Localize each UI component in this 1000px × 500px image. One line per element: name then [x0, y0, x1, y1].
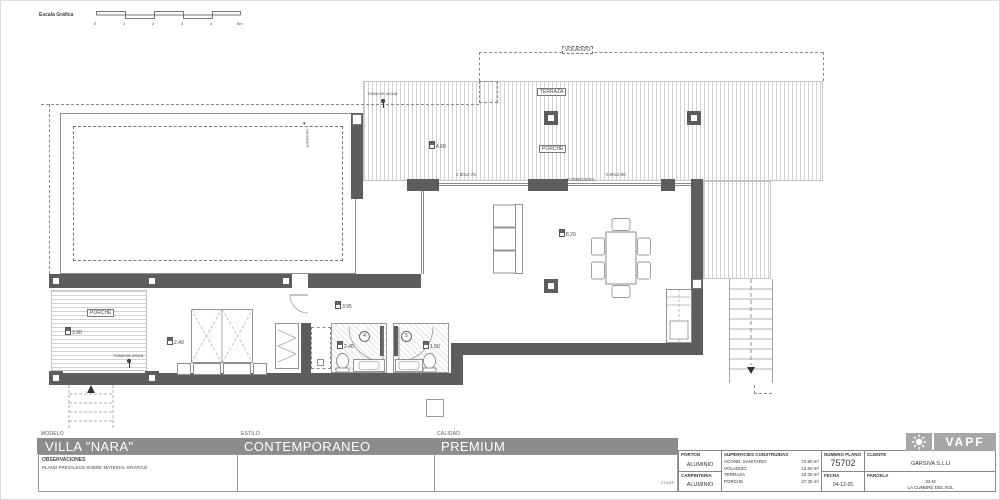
- bath-b-tag: 5: [401, 331, 412, 342]
- numero-plano-cell: NUMERO PLANO 75702: [822, 451, 865, 472]
- porton-value: ALUMINIO: [679, 462, 721, 468]
- bed-pillow: [193, 363, 221, 375]
- modelo-label: MODELO: [41, 431, 64, 437]
- numero-plano-value: 75702: [822, 458, 864, 468]
- estilo-label: ESTILO: [241, 431, 260, 437]
- title-block-table: PORTON ALUMINIO CARPINTERIA ALUMINIO SUP…: [678, 450, 996, 492]
- terrace-column: [687, 111, 701, 125]
- parcela-value-2: LA CUMBRE DEL SOL: [865, 485, 996, 490]
- wall-column: [145, 274, 159, 288]
- wall: [661, 179, 675, 191]
- porton-cell: PORTON ALUMINIO: [679, 451, 722, 472]
- wall-column: [49, 274, 63, 288]
- estilo-value: CONTEMPORANEO: [244, 439, 371, 454]
- wall-window: [692, 279, 702, 289]
- observaciones-label: OBSERVACIONES: [42, 457, 85, 463]
- superficie-row: PORCHE27.30 m²: [722, 479, 821, 486]
- voladizo-dash-step: [479, 81, 498, 103]
- carpinteria-value: ALUMINIO: [679, 482, 721, 488]
- water-tap-icon: [383, 103, 384, 108]
- scale-tick: 2: [152, 21, 154, 27]
- wall-north-wing: [49, 274, 279, 288]
- scale-tick: 3: [181, 21, 183, 27]
- bedside-table: [253, 363, 267, 375]
- voladizo-dash-line: [479, 52, 480, 81]
- dining-table: [591, 218, 651, 298]
- voladizo-label: VOLADIZO: [562, 46, 593, 54]
- terrace-hatch-right: [703, 181, 771, 279]
- sliding-door: [675, 183, 691, 186]
- vapf-sun-icon: [906, 433, 932, 451]
- wall: [528, 179, 568, 191]
- observaciones-box: OBSERVACIONES PLANO PREVALECE SOBRE MATE…: [38, 454, 238, 492]
- toma-agua-top-label: TOMA DE AGUA: [367, 91, 397, 97]
- property-dash-line: [41, 104, 479, 105]
- exterior-stairs: [729, 279, 773, 383]
- wall-south-living: [451, 343, 703, 355]
- entry-door-arc: [290, 293, 310, 315]
- parcela-value-1: 33-M: [865, 479, 996, 484]
- pool-arrow: ▾: [303, 121, 306, 127]
- detail-marker-square: [426, 399, 444, 417]
- glass-wall-west: [421, 191, 424, 274]
- scale-tick: 1: [123, 21, 125, 27]
- wardrobe: [275, 323, 299, 369]
- scale-tick: 4: [210, 21, 212, 27]
- model-bar: VILLA "NARA" CONTEMPORANEO PREMIUM: [37, 438, 678, 454]
- sliding-door: [568, 183, 661, 186]
- vanity-sink: [353, 359, 385, 372]
- pool-fitting-label: SKIMMER: [304, 129, 310, 148]
- wall-column: [279, 274, 292, 288]
- voladizo-dash-line: [479, 52, 823, 53]
- wall-column: [49, 371, 63, 385]
- corredera-label: CORREDERA: [566, 177, 595, 182]
- bed-pillow: [223, 363, 251, 375]
- scale-tick: 5m: [237, 21, 243, 27]
- observaciones-value: PLANO PREVALECE SOBRE MATERIAL GRÁFICO: [42, 465, 147, 471]
- double-bed: [191, 309, 253, 366]
- dim-marker-bedroom: 2.40: [167, 337, 184, 346]
- bath-divider: [394, 326, 398, 356]
- wall-column: [145, 371, 159, 385]
- terraza-label: TERRAZA: [537, 88, 566, 96]
- toilet: [422, 353, 437, 372]
- drawing-sheet: Escala Gráfica 0 1 2 3 4 5m VOLADIZO ▾ S…: [0, 0, 1000, 500]
- door-dimension: 2.80x2.75: [456, 172, 476, 177]
- modelo-value: VILLA "NARA": [45, 439, 133, 454]
- vanity-sink: [395, 359, 423, 372]
- wall-north-wing: [308, 274, 421, 288]
- voladizo-dash-line: [823, 52, 824, 81]
- parcela-cell: PARCELA 33-M LA CUMBRE DEL SOL: [865, 472, 996, 492]
- property-dash-line: [49, 104, 50, 274]
- level-marker-hall: 3.95: [335, 301, 352, 310]
- vapf-logo: VAPF: [934, 433, 996, 451]
- wall-hall: [301, 323, 311, 373]
- wall: [351, 113, 363, 199]
- scale-bar: [96, 11, 241, 19]
- living-column: [544, 279, 558, 293]
- pool: [73, 126, 343, 261]
- terrace-column: [544, 111, 558, 125]
- scale-bar-label: Escala Gráfica: [39, 12, 73, 18]
- level-marker-porch: 3.90: [65, 327, 82, 336]
- water-tap-icon: [129, 363, 130, 368]
- ref-code: 274-EP: [661, 480, 674, 486]
- bath-a-tag: 4: [359, 331, 370, 342]
- level-marker-living: 8.20: [559, 229, 576, 238]
- fecha-cell: FECHA 04-12-25: [822, 472, 865, 492]
- shower-drain: [317, 359, 324, 366]
- terrace-hatch: [363, 81, 823, 181]
- level-marker-terrace: 4.60: [429, 141, 446, 150]
- carpinteria-cell: CARPINTERIA ALUMINIO: [679, 472, 722, 492]
- empty-box: [237, 454, 435, 492]
- scale-tick: 0: [94, 21, 96, 27]
- superficies-cell: SUPERFICIES CONSTRUIDAS ACOND. SANITARIO…: [722, 451, 822, 492]
- toilet: [335, 353, 350, 372]
- cliente-value: GARSIVA S.L.U: [865, 461, 996, 467]
- door-dimension: 0.90x2.90: [606, 172, 626, 177]
- fecha-value: 04-12-25: [822, 482, 864, 488]
- calidad-value: PREMIUM: [441, 439, 505, 454]
- wall: [407, 179, 439, 191]
- porche-left-label: PORCHE: [87, 309, 114, 317]
- stair-landing-dash: [754, 385, 772, 394]
- empty-box: [434, 454, 678, 492]
- porch-steps: [67, 385, 115, 429]
- calidad-label: CALIDAD: [437, 431, 460, 437]
- sofa: [493, 204, 523, 274]
- wall-column: [352, 114, 362, 125]
- bedside-table: [177, 363, 191, 375]
- porche-top-label: PORCHE: [539, 145, 566, 153]
- kitchen-counter: [666, 289, 692, 343]
- dim-marker-bath-b: 1.50: [423, 341, 440, 350]
- wall-east: [691, 179, 703, 355]
- dim-marker-bath-a: 2.40: [337, 341, 354, 350]
- sliding-door: [439, 183, 528, 186]
- cliente-cell: CLIENTE GARSIVA S.L.U: [865, 451, 996, 472]
